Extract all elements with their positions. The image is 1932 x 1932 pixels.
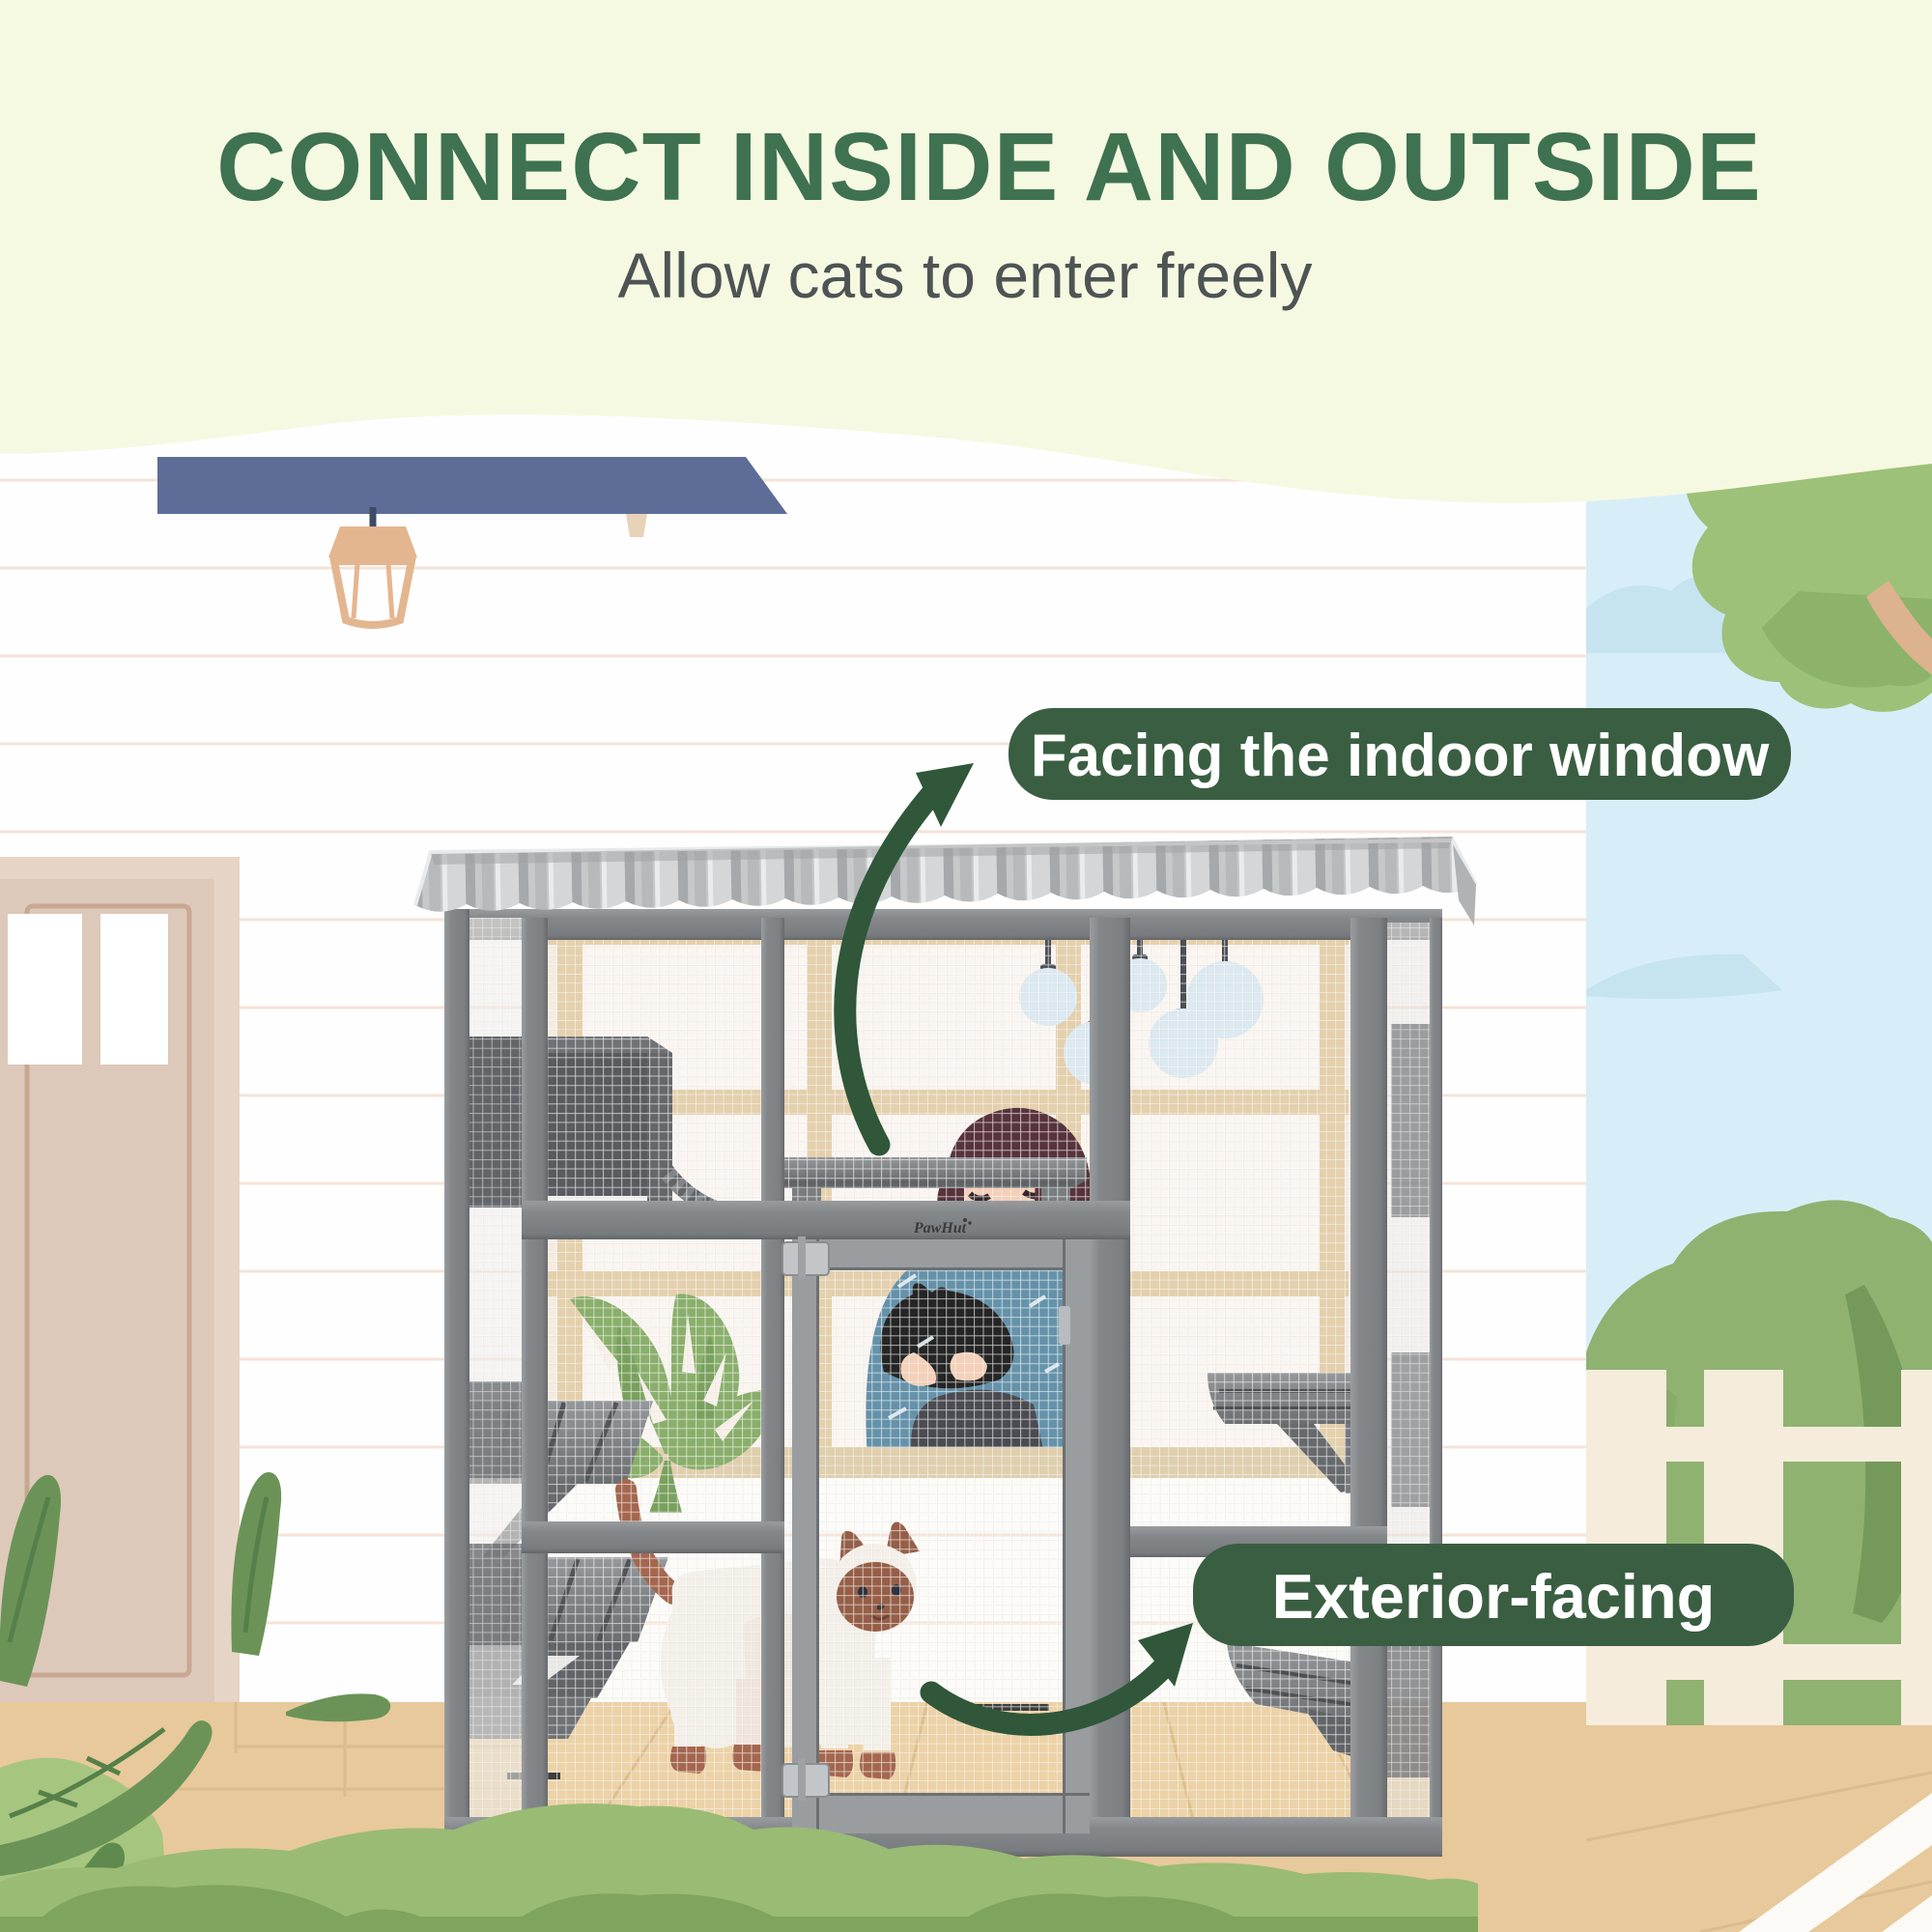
svg-text:PawHut: PawHut: [913, 1220, 967, 1236]
svg-text:Facing the indoor window: Facing the indoor window: [1031, 723, 1770, 789]
svg-text:Allow cats to enter freely: Allow cats to enter freely: [618, 240, 1313, 311]
svg-text:Exterior-facing: Exterior-facing: [1272, 1561, 1716, 1632]
svg-text:CONNECT INSIDE AND OUTSIDE: CONNECT INSIDE AND OUTSIDE: [216, 113, 1762, 221]
